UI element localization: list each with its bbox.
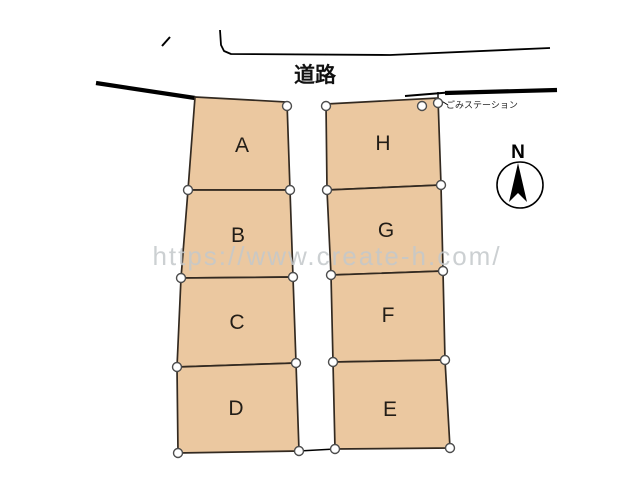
road-edge-left-thick [96,83,195,98]
lot-label-D: D [228,397,243,420]
survey-point [286,186,295,195]
lot-label-F: F [382,304,395,327]
survey-point [283,102,292,111]
lot-connector-bottom [299,449,335,451]
lot-label-C: C [229,311,244,334]
survey-point [177,274,186,283]
survey-point [327,271,336,280]
lot-label-A: A [235,134,249,157]
survey-point [441,356,450,365]
lot-label-H: H [375,132,390,155]
road-label: 道路 [294,63,337,87]
survey-point [323,186,332,195]
survey-point [437,181,446,190]
survey-point [174,449,183,458]
corner-tick [162,37,170,46]
survey-point [322,102,331,111]
survey-point [446,444,455,453]
survey-point [331,445,340,454]
survey-point [292,359,301,368]
survey-point [418,102,427,111]
compass-north-label: N [511,142,525,163]
lot-label-E: E [383,398,397,421]
survey-point [289,273,298,282]
watermark: https://www.create-h.com/ [152,241,501,271]
site-plan-drawing: ABCDHGFE 道路 ごみステーション N https://www.creat… [0,0,640,480]
lot-label-G: G [378,219,394,242]
road-edge-right-thick [445,90,557,93]
survey-point [434,99,443,108]
garbage-station-label: ごみステーション [446,99,518,110]
compass-layer [497,162,543,208]
lots-layer: ABCDHGFE [177,97,450,453]
survey-point [329,358,338,367]
survey-point [173,363,182,372]
survey-point [295,447,304,456]
survey-point [184,186,193,195]
road-edge-right-lead [405,93,448,97]
road-edge-top [220,30,550,55]
site-plan-page: ABCDHGFE 道路 ごみステーション N https://www.creat… [0,0,640,480]
